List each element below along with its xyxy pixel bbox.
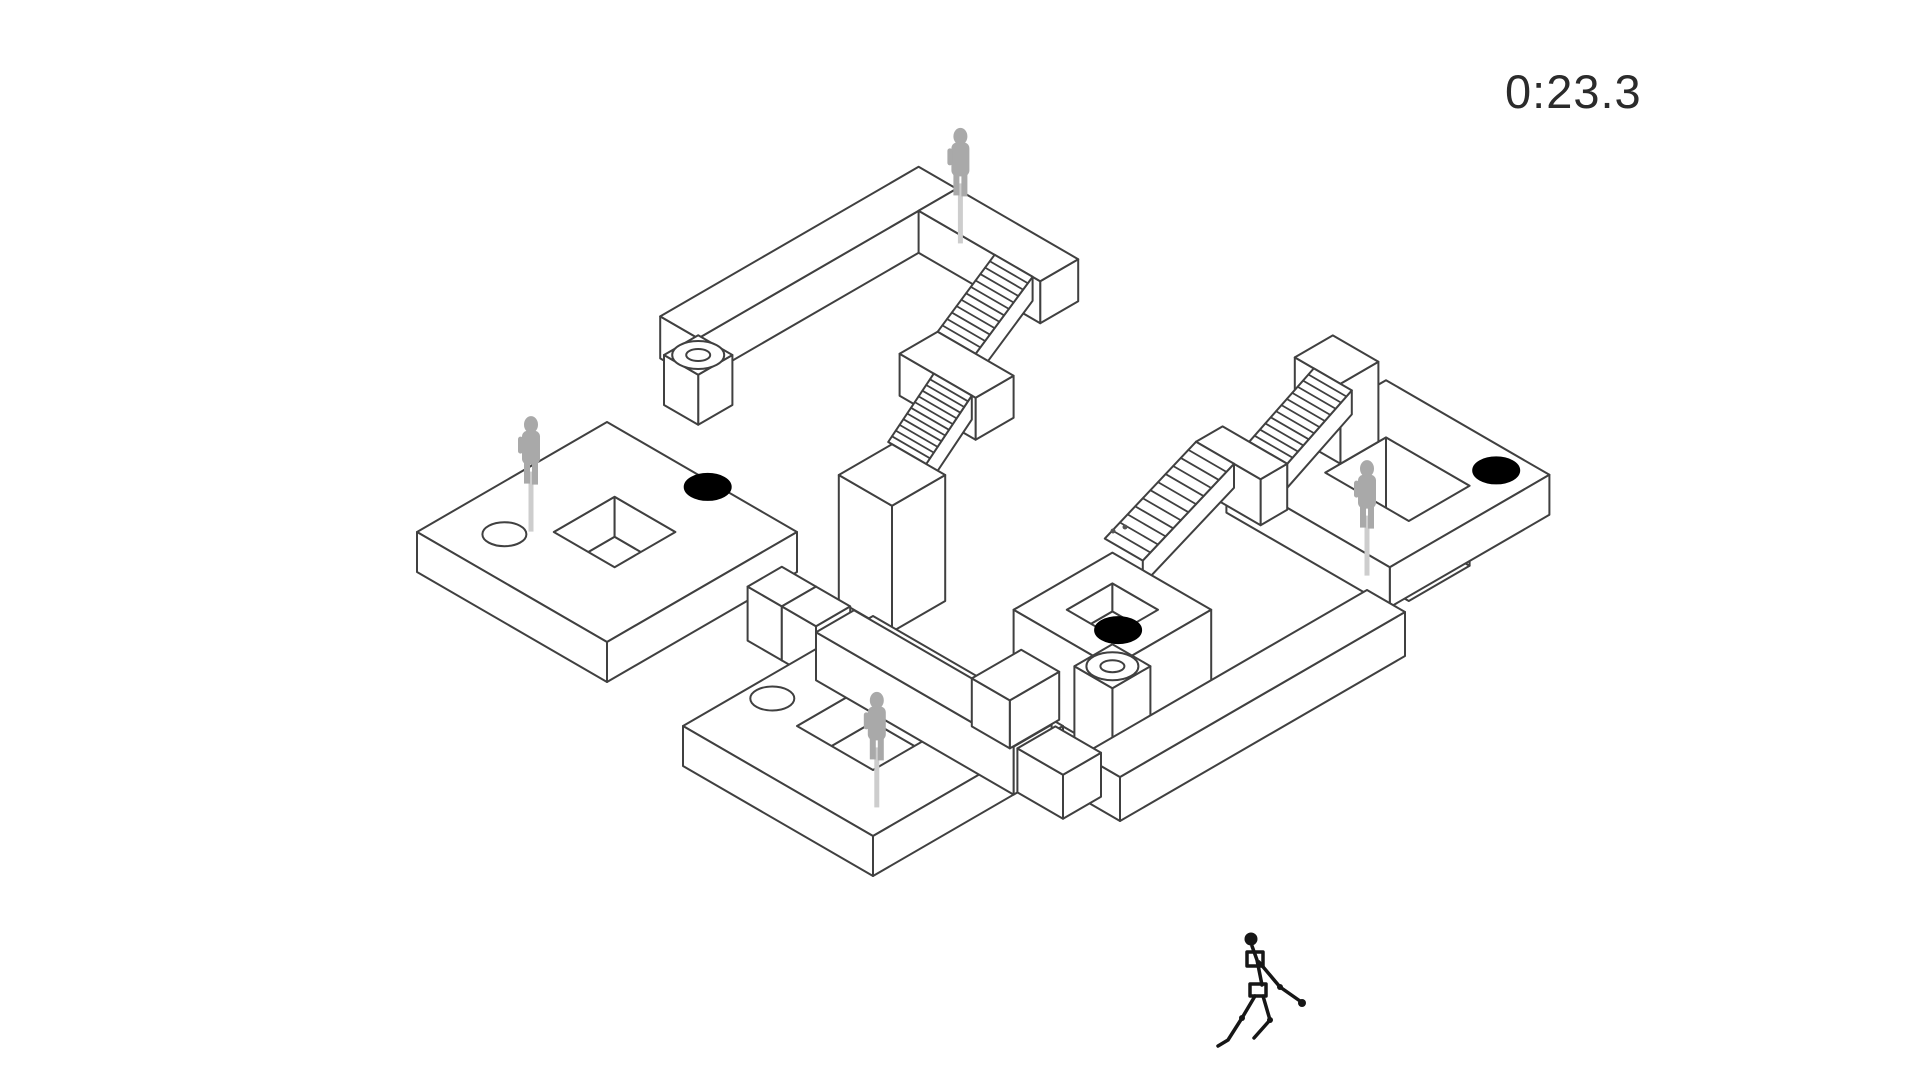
speck-1 [1111, 529, 1116, 534]
black-hole-right [1473, 457, 1519, 483]
center-pillar [839, 444, 945, 632]
player-figure [1218, 933, 1306, 1047]
pedestal-ring-hole [672, 341, 724, 369]
speck-2 [1123, 525, 1128, 530]
black-hole-mid [1095, 617, 1141, 643]
left-platform [417, 422, 797, 682]
timer: 0:23.3 [1505, 64, 1642, 119]
game-viewport: 0:23.3 [0, 0, 1906, 1080]
column-ring-hole [1086, 652, 1138, 680]
white-hole-bottom [750, 687, 794, 711]
level-canvas[interactable] [0, 0, 1906, 1080]
black-hole-left [685, 474, 731, 500]
white-hole-left [482, 522, 526, 546]
